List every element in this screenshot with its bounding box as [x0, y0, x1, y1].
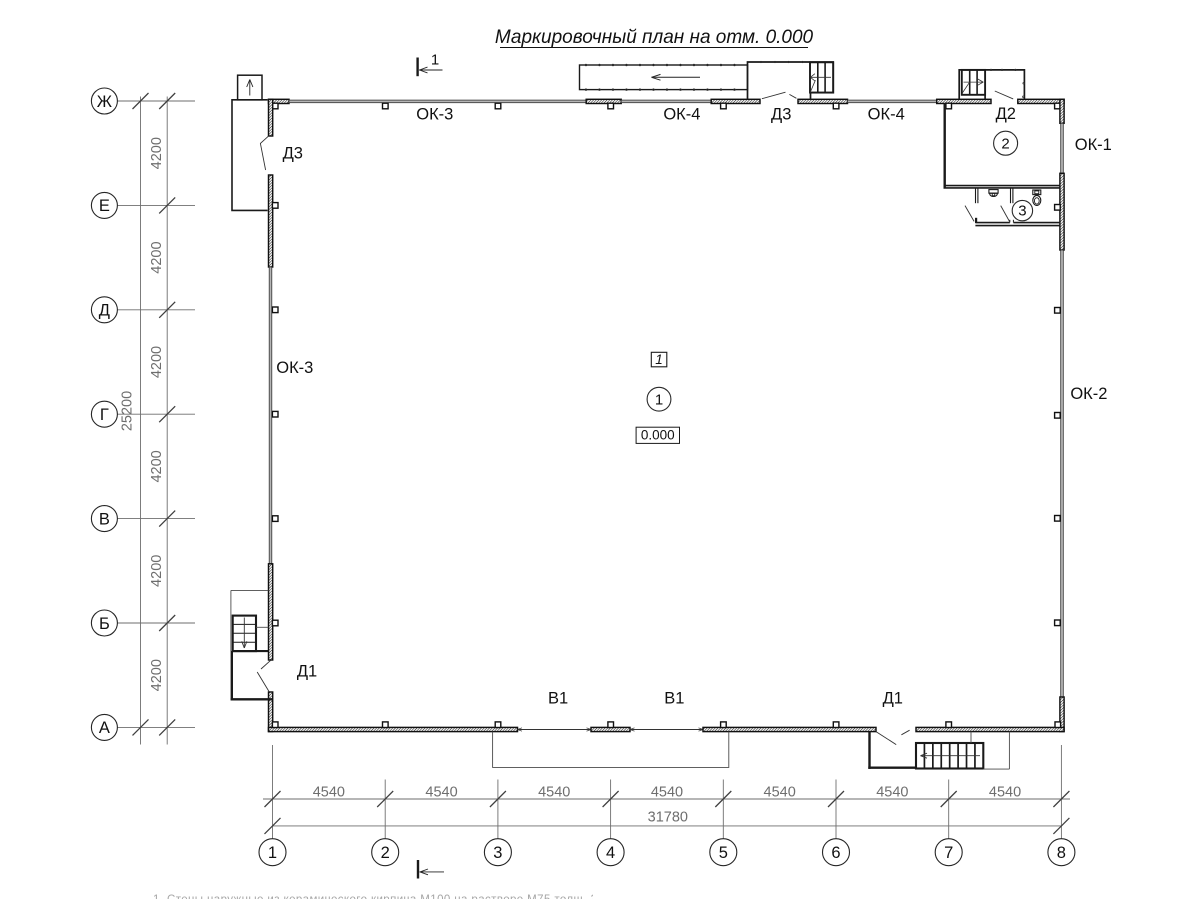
- svg-text:4540: 4540: [651, 785, 683, 801]
- svg-text:25200: 25200: [120, 391, 136, 431]
- svg-text:4540: 4540: [764, 785, 796, 801]
- svg-text:4200: 4200: [149, 450, 165, 482]
- svg-text:4: 4: [606, 844, 615, 862]
- svg-text:Г: Г: [100, 406, 109, 424]
- svg-text:Е: Е: [99, 197, 110, 215]
- svg-text:1: 1: [655, 352, 663, 367]
- svg-text:2: 2: [1001, 135, 1009, 152]
- svg-text:ОК-3: ОК-3: [416, 106, 453, 124]
- svg-text:Д3: Д3: [283, 145, 303, 163]
- svg-text:Б: Б: [99, 615, 110, 633]
- svg-text:Маркировочный план на отм. 0.0: Маркировочный план на отм. 0.000: [495, 27, 814, 48]
- svg-text:В1: В1: [548, 690, 568, 708]
- svg-text:2: 2: [381, 844, 390, 862]
- svg-text:Д2: Д2: [996, 105, 1016, 123]
- svg-text:3: 3: [493, 844, 502, 862]
- svg-text:Д1: Д1: [883, 689, 903, 707]
- svg-text:ОК-4: ОК-4: [663, 106, 700, 124]
- svg-text:8: 8: [1057, 844, 1066, 862]
- svg-text:1: 1: [431, 52, 439, 69]
- svg-text:Д: Д: [99, 302, 110, 320]
- svg-text:4200: 4200: [149, 659, 165, 691]
- svg-text:ОК-2: ОК-2: [1070, 385, 1107, 403]
- svg-text:В: В: [99, 510, 110, 528]
- svg-text:6: 6: [831, 844, 840, 862]
- svg-text:4540: 4540: [538, 785, 570, 801]
- svg-text:5: 5: [719, 844, 728, 862]
- svg-text:4200: 4200: [149, 137, 165, 169]
- svg-text:4540: 4540: [425, 785, 457, 801]
- svg-text:0.000: 0.000: [641, 428, 675, 443]
- svg-text:В1: В1: [664, 690, 684, 708]
- svg-text:ОК-4: ОК-4: [868, 106, 905, 124]
- svg-text:ОК-3: ОК-3: [276, 359, 313, 377]
- svg-text:31780: 31780: [648, 810, 688, 826]
- svg-text:7: 7: [944, 844, 953, 862]
- svg-text:4200: 4200: [149, 241, 165, 273]
- svg-text:Ж: Ж: [97, 93, 113, 111]
- svg-text:ОК-1: ОК-1: [1075, 136, 1112, 154]
- svg-text:Д1: Д1: [297, 663, 317, 681]
- svg-text:3: 3: [1018, 203, 1026, 220]
- svg-text:1: 1: [268, 844, 277, 862]
- svg-text:А: А: [99, 719, 110, 737]
- svg-text:4540: 4540: [989, 785, 1021, 801]
- svg-text:4540: 4540: [876, 785, 908, 801]
- svg-text:4540: 4540: [313, 785, 345, 801]
- svg-text:1: 1: [655, 391, 663, 408]
- svg-text:Д3: Д3: [771, 106, 791, 124]
- svg-text:4200: 4200: [149, 555, 165, 587]
- svg-text:4200: 4200: [149, 346, 165, 378]
